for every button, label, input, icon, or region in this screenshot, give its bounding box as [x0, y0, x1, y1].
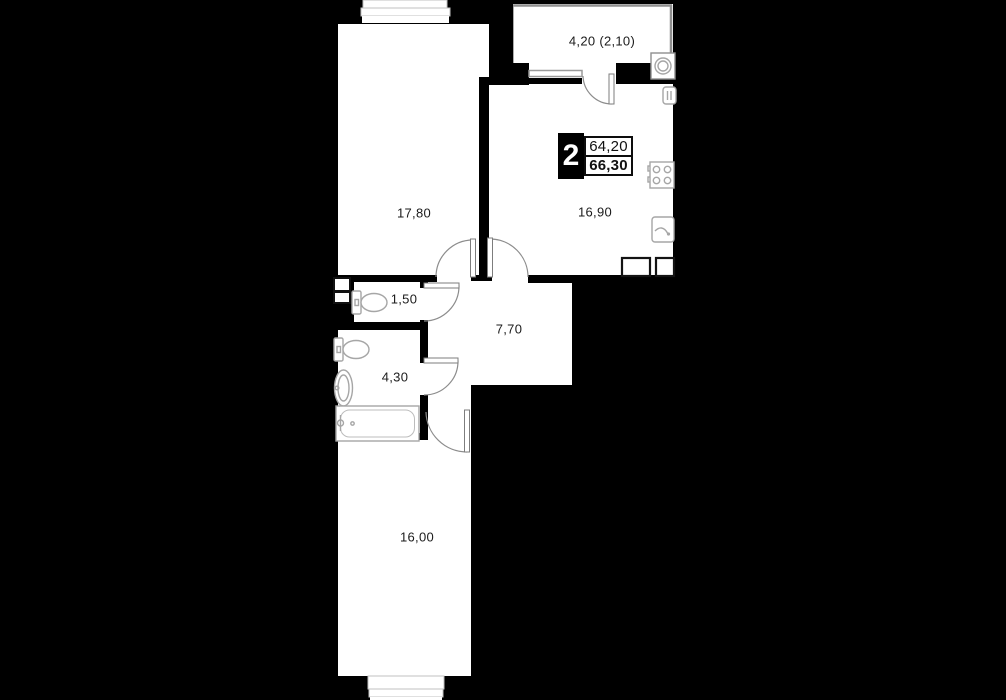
wc-area-label: 1,50 — [391, 292, 418, 307]
boiler-icon — [663, 87, 676, 104]
living-room-floor — [338, 24, 489, 282]
bathroom-area-label: 4,30 — [382, 370, 409, 385]
wall-outer-right — [673, 0, 684, 283]
kitchen-counter-icon — [622, 258, 674, 276]
wall-kitchen-top-right — [616, 63, 653, 79]
kitchen-floor — [488, 84, 675, 281]
kitchen-sink-icon — [652, 217, 674, 242]
stove-icon — [648, 162, 674, 188]
unit-area-total: 66,30 — [584, 155, 633, 176]
floor-layer — [338, 4, 675, 676]
balcony-area-label: 4,20 (2,10) — [569, 34, 635, 49]
wall-kitchen-top-left — [505, 63, 529, 85]
floor-plan-drawing — [0, 0, 1006, 700]
bedroom-area-label: 16,00 — [400, 530, 434, 545]
floor-plan: 17,80 16,90 4,20 (2,10) 1,50 7,70 4,30 1… — [0, 0, 1006, 700]
kitchen-area-label: 16,90 — [578, 205, 612, 220]
wash-basin-icon — [335, 370, 353, 406]
window-top — [361, 0, 450, 23]
vent-shaft-icon — [334, 278, 350, 303]
hallway-area-label: 7,70 — [496, 322, 523, 337]
wall-wc-right-2 — [420, 320, 428, 363]
unit-rooms-count: 2 — [558, 133, 584, 179]
bathtub-icon — [336, 406, 419, 441]
washing-machine-icon — [651, 53, 675, 79]
wall-wc-bottom — [328, 322, 423, 330]
unit-area-upper: 64,20 — [584, 136, 633, 157]
window-balcony-kitchen — [529, 71, 582, 77]
unit-info-badge: 2 64,20 66,30 — [558, 133, 633, 179]
window-bottom — [368, 676, 444, 700]
unit-areas: 64,20 66,30 — [584, 136, 633, 176]
living-room-area-label: 17,80 — [397, 206, 431, 221]
bedroom-floor — [338, 440, 471, 676]
